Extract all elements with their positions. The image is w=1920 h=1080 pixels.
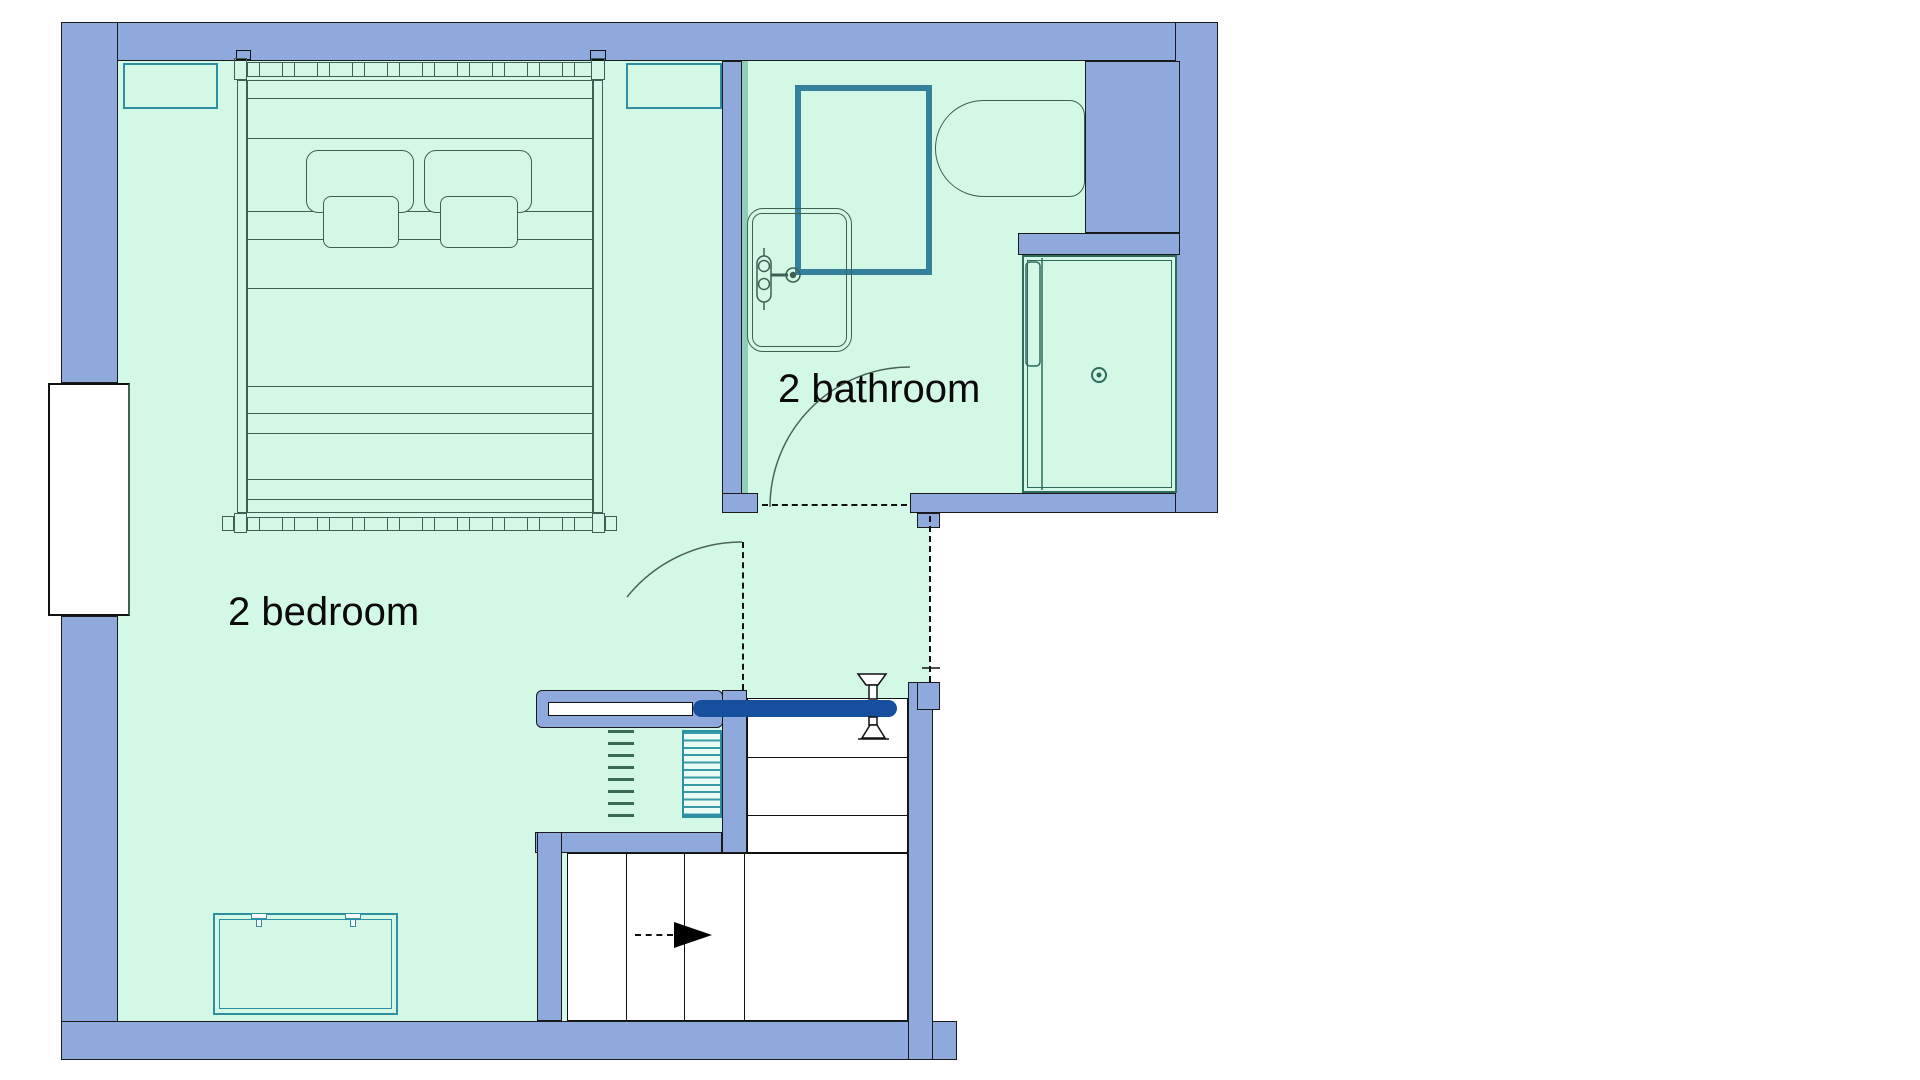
bed-footboard-rail [247, 517, 592, 531]
loft-ladder-rungs [608, 730, 634, 820]
dresser-handle [345, 913, 361, 919]
bed-footboard-post [592, 513, 605, 533]
bed-mattress [247, 80, 593, 513]
hall-floor [722, 513, 930, 700]
bedroom-label: 2 bedroom [228, 592, 419, 632]
stair-tread-line [748, 757, 907, 758]
bed-headboard-post [591, 58, 605, 80]
stair-lower-flight [567, 853, 908, 1021]
blanket-fold-line [248, 386, 592, 387]
stair-left-wall-lower [537, 832, 562, 1021]
bathroom-label: 2 bathroom [778, 369, 980, 409]
bed-footboard-corner [605, 516, 617, 531]
bed-side-rail-right [593, 80, 603, 513]
blanket-fold-line [248, 239, 592, 240]
stair-riser-line [744, 854, 745, 1020]
left-wall-upper [61, 22, 118, 383]
bedroom-door-leaf [742, 542, 744, 690]
bed-headboard-rail [247, 62, 591, 77]
stair-direction-arrowhead [674, 922, 712, 948]
bed-headboard-post [234, 58, 247, 80]
stair-upper-flight [747, 698, 908, 853]
blanket-fold-line [248, 479, 592, 480]
dresser-handle-stem [350, 919, 356, 927]
sliding-gate-bar [693, 700, 897, 717]
window [48, 383, 130, 616]
dresser-handle-stem [256, 919, 262, 927]
shower-stall-top-wall [1018, 233, 1180, 255]
dresser [213, 913, 398, 1015]
hall-wall-stub-bottom [917, 682, 940, 710]
wall-cabinet-bedroom [123, 63, 218, 109]
blanket-fold-line [248, 413, 592, 414]
wall-cabinet-bathroom [626, 63, 722, 109]
stair-right-wall [908, 682, 933, 1060]
bathroom-doorway-floor [742, 493, 910, 513]
stair-opening-dashed-edge [929, 516, 931, 682]
floor-plan: 2 bedroom 2 bathroom [0, 0, 1920, 1080]
toilet [935, 100, 1085, 197]
blanket-fold-line [248, 98, 592, 99]
bottom-wall [61, 1021, 957, 1060]
blanket-fold-line [248, 288, 592, 289]
pillow-small-right [440, 196, 518, 248]
interior-wall-bedroom-bath [722, 61, 742, 513]
mini-stairs-hatch [682, 730, 722, 818]
stair-direction-dash [635, 934, 673, 936]
bed-footboard-post [234, 513, 247, 533]
bathroom-door-opening [762, 504, 907, 506]
left-wall-lower [61, 616, 118, 1060]
pillow-small-left [323, 196, 399, 248]
stair-band-wall [535, 832, 722, 853]
bathtub [747, 208, 852, 352]
balustrade-slot [548, 702, 693, 716]
bathroom-bottom-wall [910, 493, 1218, 513]
stair-riser-line [626, 854, 627, 1020]
stair-tread-line [748, 815, 907, 816]
bed-footboard-corner [222, 516, 234, 531]
interior-wall-foot [722, 493, 758, 513]
bed-side-rail-left [237, 80, 247, 513]
right-wall [1175, 22, 1218, 513]
dresser-handle [251, 913, 267, 919]
blanket-fold-line [248, 499, 592, 500]
bathroom-corner-block [1085, 61, 1180, 233]
bed [222, 47, 617, 533]
shower-stall [1022, 255, 1177, 493]
blanket-fold-line [248, 211, 592, 212]
blanket-fold-line [248, 138, 592, 139]
blanket-fold-line [248, 433, 592, 434]
